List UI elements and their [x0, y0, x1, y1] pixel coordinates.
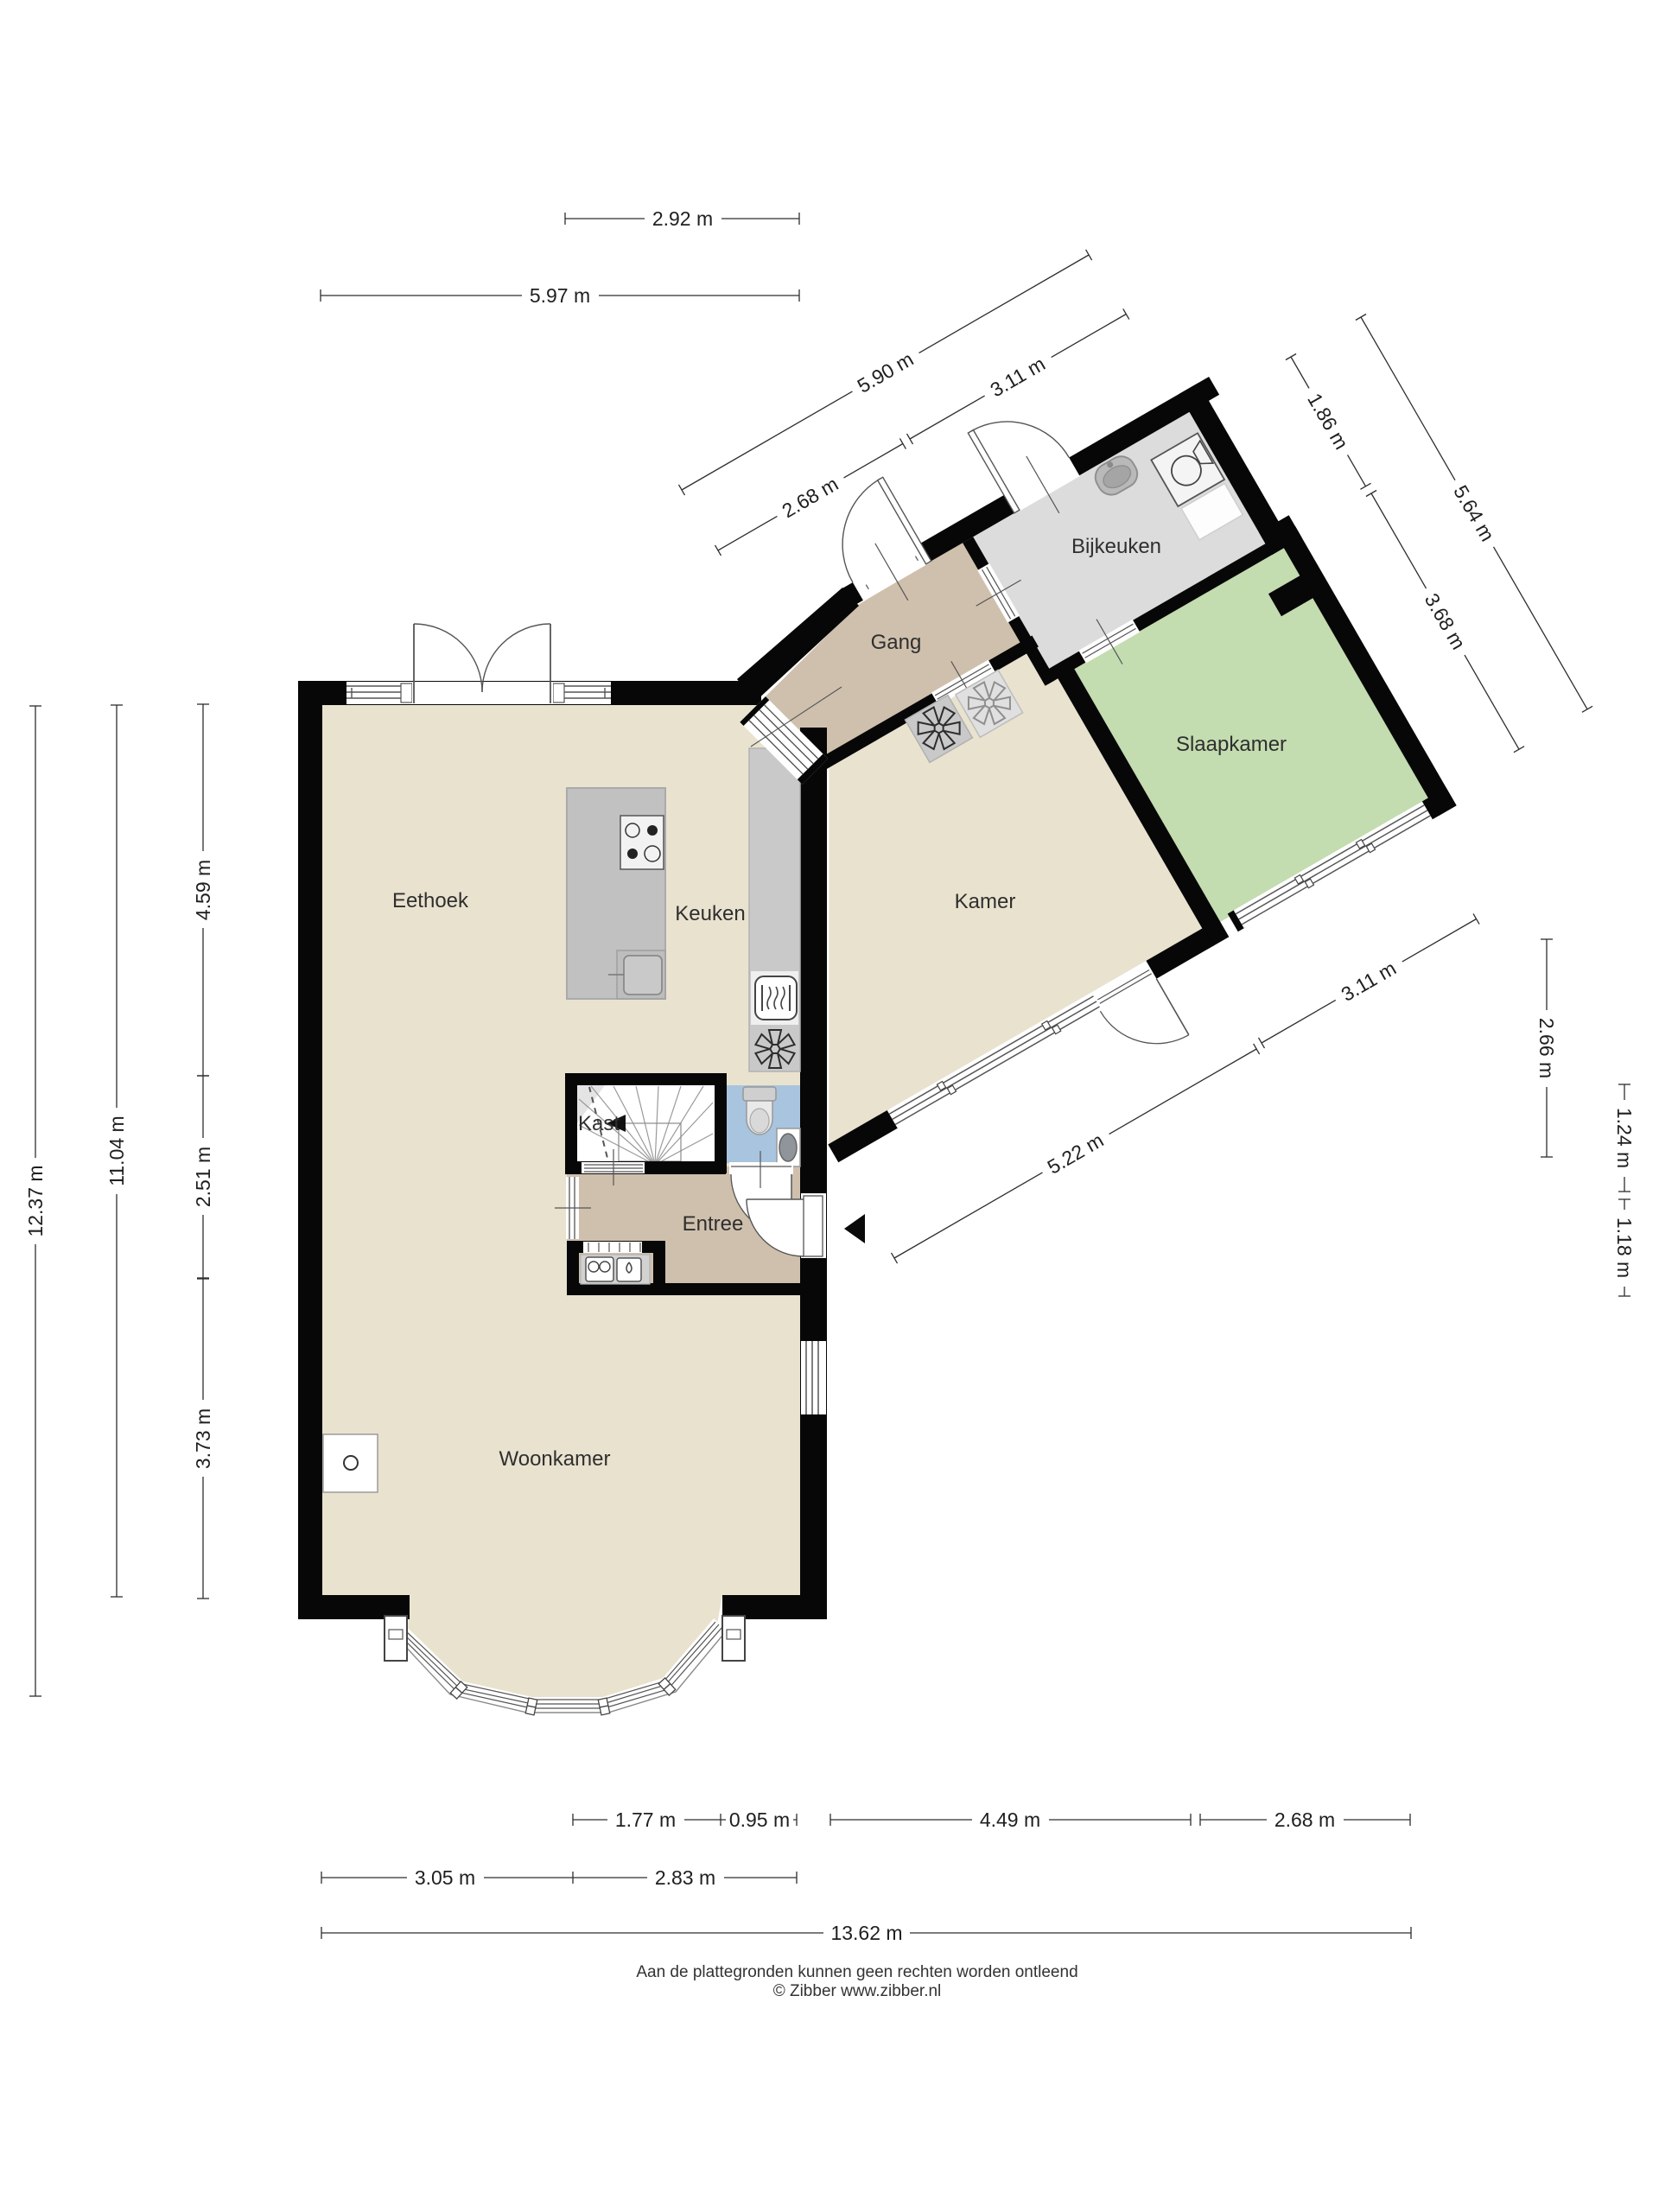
svg-text:Slaapkamer: Slaapkamer: [1176, 733, 1287, 756]
svg-text:5.97 m: 5.97 m: [530, 284, 590, 307]
svg-text:Kamer: Kamer: [955, 890, 1016, 913]
svg-text:2.51 m: 2.51 m: [192, 1147, 214, 1207]
svg-text:1.77 m: 1.77 m: [615, 1808, 676, 1831]
svg-text:0.95 m: 0.95 m: [729, 1808, 790, 1831]
svg-text:Eethoek: Eethoek: [392, 889, 469, 912]
svg-text:2.66 m: 2.66 m: [1535, 1018, 1558, 1078]
svg-text:1.18 m: 1.18 m: [1613, 1217, 1636, 1278]
svg-text:© Zibber www.zibber.nl: © Zibber www.zibber.nl: [773, 1982, 942, 2000]
svg-text:Kast: Kast: [578, 1112, 620, 1135]
svg-text:Woonkamer: Woonkamer: [499, 1447, 611, 1471]
svg-text:3.73 m: 3.73 m: [192, 1408, 214, 1469]
svg-text:1.24 m: 1.24 m: [1613, 1108, 1636, 1168]
svg-text:2.92 m: 2.92 m: [652, 207, 713, 230]
svg-text:4.59 m: 4.59 m: [192, 860, 214, 920]
svg-text:Keuken: Keuken: [675, 902, 745, 925]
svg-text:3.05 m: 3.05 m: [415, 1866, 475, 1889]
svg-text:11.04 m: 11.04 m: [105, 1116, 128, 1185]
svg-text:Gang: Gang: [871, 631, 922, 654]
svg-text:13.62 m: 13.62 m: [830, 1922, 902, 1944]
svg-text:4.49 m: 4.49 m: [980, 1808, 1040, 1831]
svg-text:Bijkeuken: Bijkeuken: [1071, 535, 1161, 558]
svg-text:2.68 m: 2.68 m: [1274, 1808, 1335, 1831]
svg-text:Entree: Entree: [683, 1212, 744, 1236]
svg-text:Aan de plattegronden kunnen ge: Aan de plattegronden kunnen geen rechten…: [636, 1963, 1077, 1981]
svg-text:2.83 m: 2.83 m: [655, 1866, 715, 1889]
svg-text:12.37 m: 12.37 m: [24, 1165, 47, 1236]
